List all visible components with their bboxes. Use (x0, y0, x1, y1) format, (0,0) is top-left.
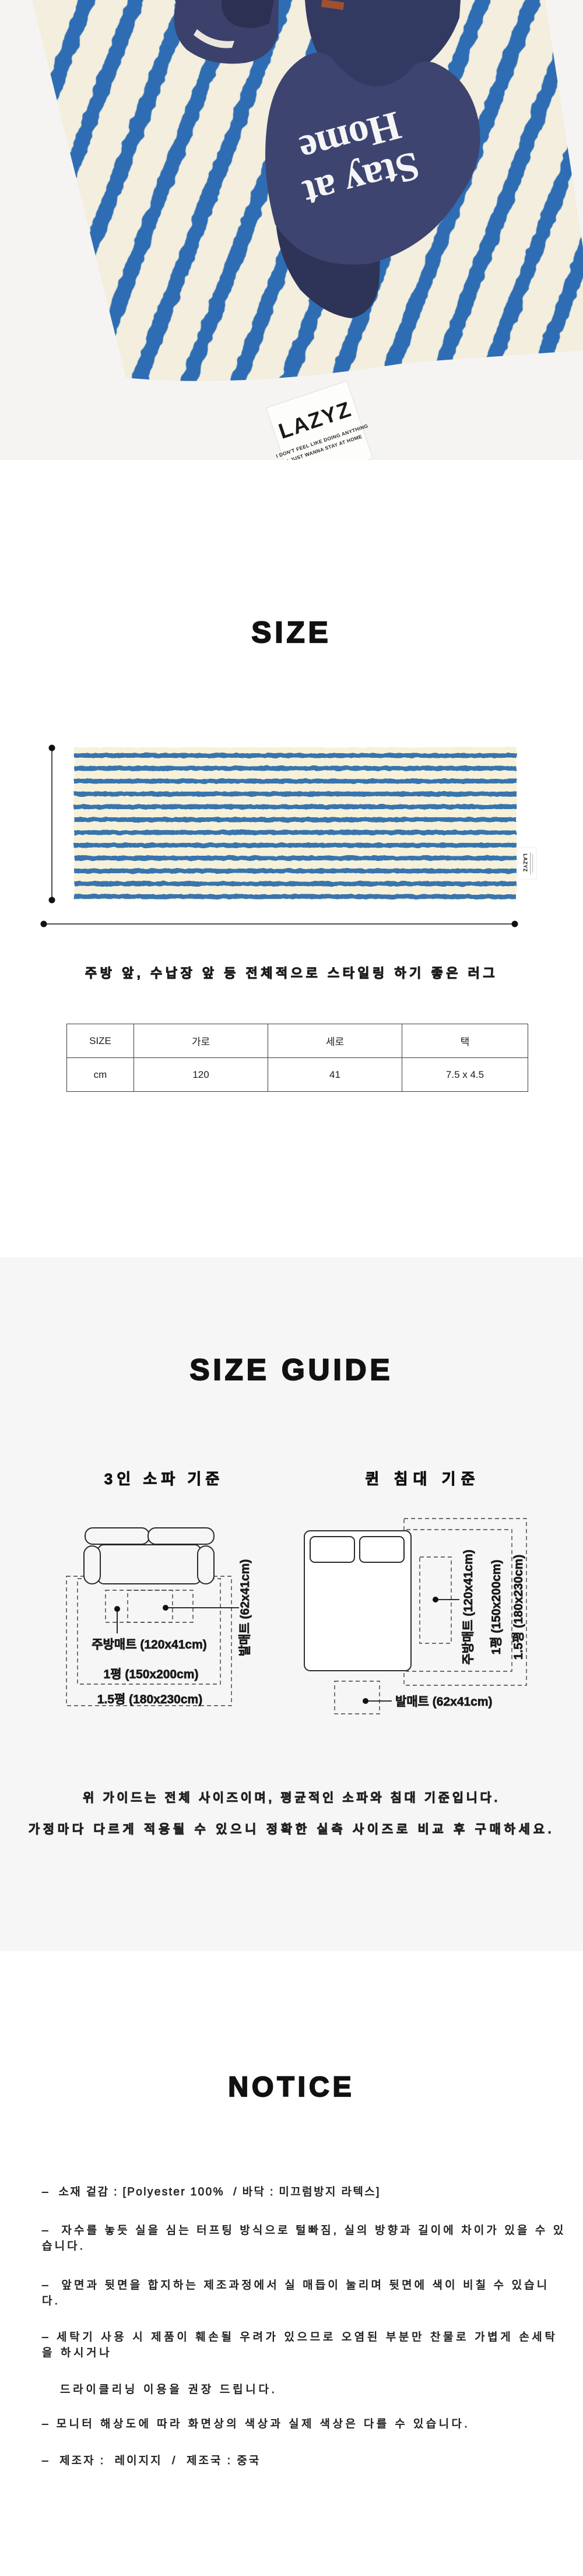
svg-text:발매트 (62x41cm): 발매트 (62x41cm) (395, 1695, 493, 1709)
svg-text:1.5평 (180x230cm): 1.5평 (180x230cm) (97, 1693, 202, 1706)
svg-text:주방매트 (120x41cm): 주방매트 (120x41cm) (92, 1638, 207, 1651)
svg-text:주방매트 (120x41cm): 주방매트 (120x41cm) (462, 1549, 475, 1665)
svg-text:1평 (150x200cm): 1평 (150x200cm) (490, 1560, 503, 1655)
svg-text:1.5평 (180x230cm): 1.5평 (180x230cm) (512, 1555, 525, 1660)
svg-text:LAZYZ: LAZYZ (522, 853, 528, 872)
svg-text:1평 (150x200cm): 1평 (150x200cm) (104, 1668, 199, 1681)
svg-text:발매트 (62x41cm): 발매트 (62x41cm) (238, 1559, 252, 1657)
